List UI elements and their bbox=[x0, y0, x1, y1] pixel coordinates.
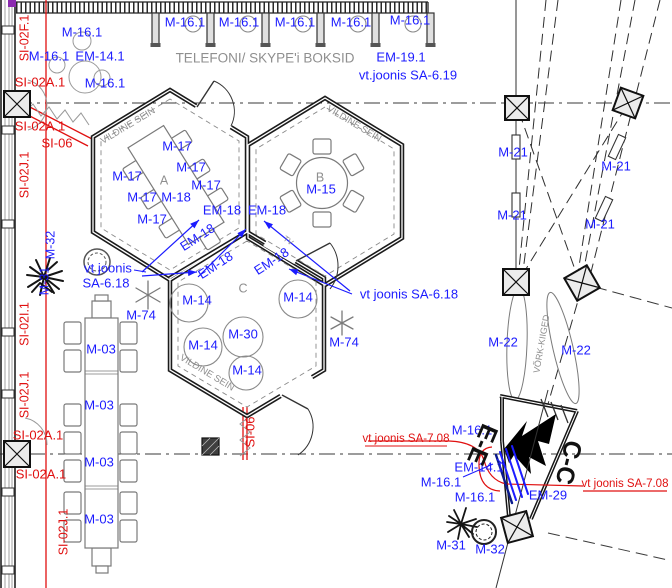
label-booth-m16-2: M-16.1 bbox=[219, 14, 259, 29]
wreath-m32-right bbox=[472, 520, 496, 544]
label-booth-m16-1: M-16.1 bbox=[165, 14, 205, 29]
label-vt-joonis-sa618-left-1: vt joonis bbox=[84, 260, 132, 275]
label-m14-4: M-14 bbox=[232, 362, 262, 377]
light-fixtures-m21 bbox=[512, 134, 626, 221]
label-m21-2: M-21 bbox=[601, 158, 631, 173]
label-room-a: A bbox=[160, 173, 169, 187]
label-m22-1: M-22 bbox=[488, 334, 518, 349]
label-m17-6: M-17 bbox=[137, 211, 167, 226]
label-room-b: B bbox=[316, 170, 324, 184]
label-m03-1: M-03 bbox=[86, 341, 116, 356]
label-vt-joonis-sa619: vt.joonis SA-6.19 bbox=[359, 67, 457, 82]
label-booth-caption: TELEFONI/ SKYPE'i BOKSID bbox=[176, 51, 355, 66]
label-m17-5: M-17 bbox=[127, 189, 157, 204]
label-m32-br: M-32 bbox=[475, 541, 505, 556]
reference-arrow-head bbox=[289, 269, 299, 275]
label-vildine-sein-b: VILDINE SEIN bbox=[325, 103, 384, 144]
left-exterior-wall bbox=[1, 0, 15, 588]
label-m03-2: M-03 bbox=[84, 397, 114, 412]
label-m16-br-2: M-16.1 bbox=[421, 474, 461, 489]
label-room-c: C bbox=[238, 281, 247, 295]
label-m18: M-18 bbox=[161, 189, 191, 204]
label-si02j-2: SI-02J.1 bbox=[17, 372, 31, 419]
label-si02a-2: SI-02A.1 bbox=[15, 118, 66, 133]
label-m31-br: M-31 bbox=[436, 537, 466, 552]
label-booth-m16-4: M-16.1 bbox=[331, 14, 371, 29]
floor-plan-canvas: M-16.1M-16.1EM-14.1M-16.1M-16.1M-16.1M-1… bbox=[0, 0, 672, 588]
label-m14-2: M-14 bbox=[283, 289, 313, 304]
label-em14-topleft: EM-14.1 bbox=[75, 48, 124, 63]
floor-box bbox=[202, 438, 219, 455]
label-em18-1: EM-18 bbox=[203, 202, 241, 217]
label-m21-3: M-21 bbox=[497, 207, 527, 222]
label-m21-4: M-21 bbox=[585, 216, 615, 231]
label-em29: EM-29 bbox=[529, 487, 567, 502]
label-vt-joonis-sa708-left: vt joonis SA-7.08 bbox=[363, 433, 450, 445]
label-m22-2: M-22 bbox=[561, 342, 591, 357]
label-booth-m16-5: M-16.1 bbox=[390, 12, 430, 27]
label-m31-left: M-31 bbox=[37, 267, 51, 296]
label-vork-kiiged: VÕRK-KIIGED bbox=[531, 313, 551, 373]
label-em18-2: EM-18 bbox=[248, 202, 286, 217]
label-m74-right: M-74 bbox=[329, 334, 359, 349]
label-vt-joonis-sa618-right: vt joonis SA-6.18 bbox=[360, 286, 458, 301]
label-si02a-4: SI-02A.1 bbox=[16, 466, 67, 481]
label-vt-joonis-sa618-left-2: SA-6.18 bbox=[83, 275, 130, 290]
floor-plan-drawing: M-16.1M-16.1EM-14.1M-16.1M-16.1M-16.1M-1… bbox=[0, 0, 672, 588]
label-si02a-3: SI-02A.1 bbox=[13, 427, 64, 442]
label-m14-1: M-14 bbox=[182, 292, 212, 307]
label-si02j-3: SI-02J.1 bbox=[56, 509, 70, 556]
label-si02i: SI-02I.1 bbox=[17, 302, 31, 346]
label-m32-left: M-32 bbox=[43, 231, 57, 260]
label-vt-joonis-sa708-right: vt joonis SA-7.08 bbox=[582, 478, 669, 490]
label-m03-3: M-03 bbox=[84, 454, 114, 469]
label-m16-topleft-1: M-16.1 bbox=[62, 24, 102, 39]
label-si06-vertical: SI-06 bbox=[242, 416, 257, 447]
label-m21-1: M-21 bbox=[498, 144, 528, 159]
label-m16-br-3: M-16.1 bbox=[455, 489, 495, 504]
label-m03-4: M-03 bbox=[84, 511, 114, 526]
label-si06-top: SI-06 bbox=[41, 135, 72, 150]
label-m16-topleft-3: M-16.1 bbox=[85, 75, 125, 90]
room-c-walls bbox=[170, 232, 324, 416]
label-booth-m16-3: M-16.1 bbox=[275, 14, 315, 29]
label-m17-3: M-17 bbox=[112, 168, 142, 183]
label-si02f: SI-02F.1 bbox=[17, 15, 31, 62]
label-m17-4: M-17 bbox=[191, 177, 221, 192]
label-m16-topleft-2: M-16.1 bbox=[29, 48, 69, 63]
label-vildine-sein-c: VILDINE SEIN bbox=[178, 352, 237, 393]
label-m74-left: M-74 bbox=[126, 307, 156, 322]
label-si02j-1: SI-02J.1 bbox=[17, 152, 31, 199]
label-m17-2: M-17 bbox=[176, 159, 206, 174]
label-m14-3: M-14 bbox=[188, 337, 218, 352]
label-m17-1: M-17 bbox=[162, 138, 192, 153]
wall-highlight-mark bbox=[8, 0, 16, 7]
label-m30: M-30 bbox=[228, 326, 258, 341]
hexagon-rooms bbox=[93, 81, 402, 455]
long-table-group bbox=[64, 295, 137, 573]
top-wall bbox=[8, 0, 428, 13]
label-em19: EM-19.1 bbox=[376, 49, 425, 64]
label-si02a-1: SI-02A.1 bbox=[15, 74, 66, 89]
